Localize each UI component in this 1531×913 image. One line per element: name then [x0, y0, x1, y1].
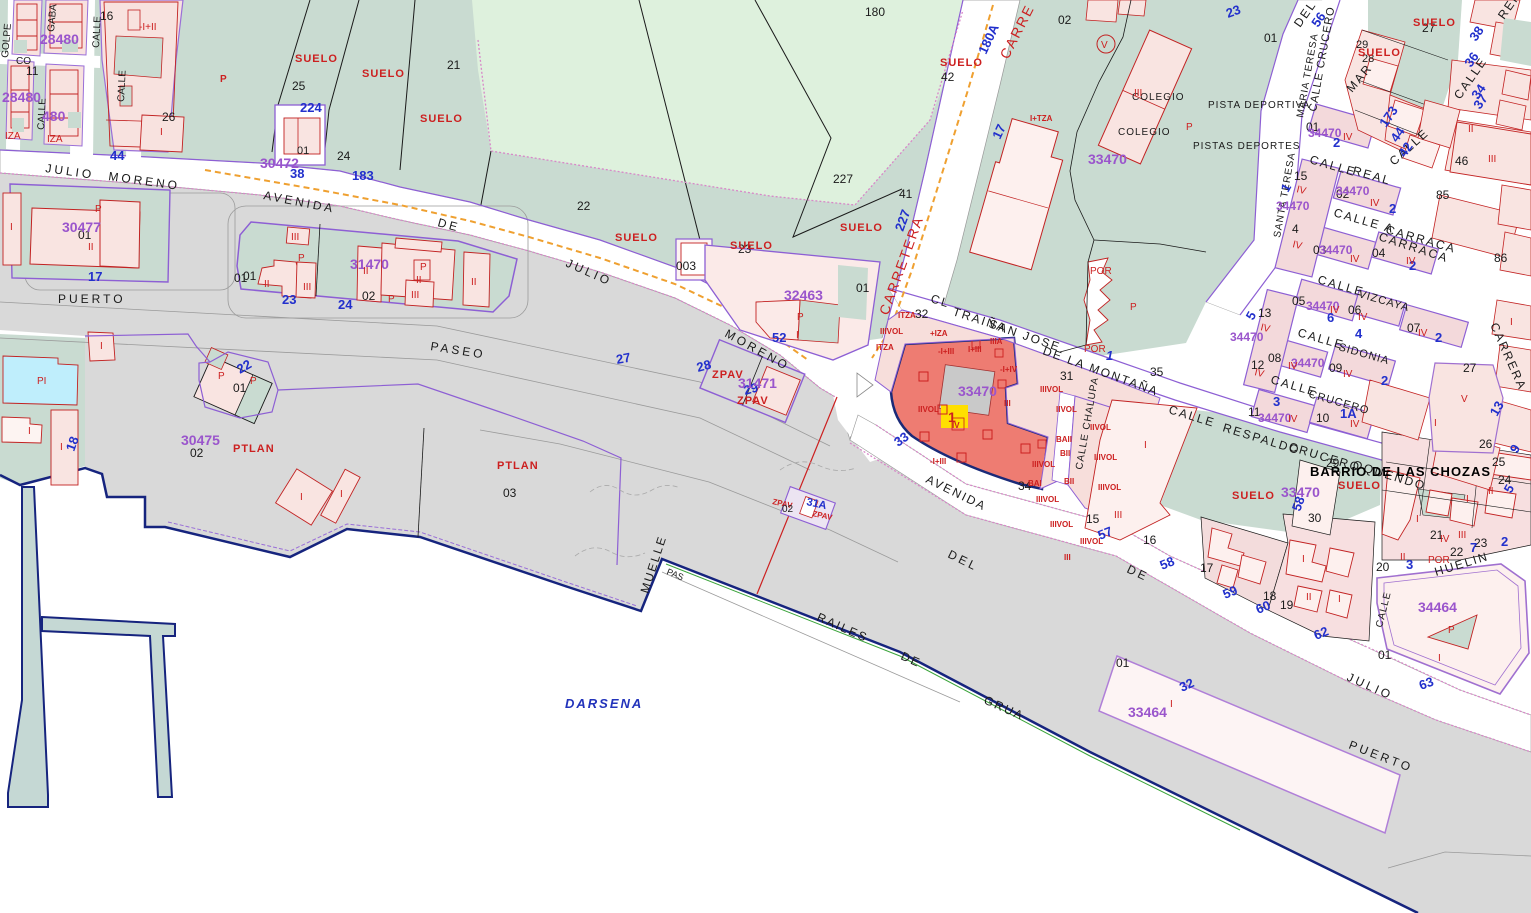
svg-text:II: II — [471, 277, 477, 288]
svg-text:IV: IV — [1288, 414, 1298, 425]
svg-text:19: 19 — [1280, 598, 1294, 612]
svg-text:V: V — [1101, 40, 1108, 51]
svg-text:24: 24 — [338, 297, 353, 312]
svg-text:52: 52 — [772, 330, 786, 345]
svg-text:29: 29 — [1326, 456, 1340, 470]
svg-text:22: 22 — [577, 199, 591, 213]
svg-text:09: 09 — [1329, 361, 1343, 375]
svg-text:30475: 30475 — [181, 432, 220, 448]
svg-text:III: III — [291, 232, 299, 243]
svg-text:32463: 32463 — [784, 287, 823, 303]
svg-text:41: 41 — [899, 187, 913, 201]
svg-text:PTLAN: PTLAN — [233, 443, 275, 455]
svg-text:POR: POR — [1084, 344, 1106, 355]
svg-text:28480: 28480 — [40, 31, 79, 47]
svg-text:P: P — [1186, 122, 1193, 133]
svg-text:20: 20 — [1376, 560, 1390, 574]
svg-text:II: II — [1488, 486, 1494, 497]
svg-text:I: I — [796, 330, 799, 341]
svg-text:IV: IV — [952, 421, 960, 430]
svg-text:15: 15 — [1086, 512, 1100, 526]
svg-text:13: 13 — [1258, 306, 1272, 320]
svg-text:02: 02 — [362, 289, 376, 303]
svg-text:IIIVOL: IIIVOL — [1036, 495, 1059, 504]
svg-text:P: P — [388, 294, 395, 305]
svg-text:SUELO: SUELO — [1232, 490, 1275, 502]
svg-text:IV: IV — [1288, 361, 1298, 372]
svg-text:IIVOL: IIVOL — [1090, 423, 1111, 432]
svg-text:-I+III: -I+III — [938, 347, 954, 356]
svg-text:PI: PI — [37, 376, 46, 387]
svg-text:IV: IV — [1350, 254, 1360, 265]
svg-text:II: II — [1306, 592, 1312, 603]
svg-text:IIIVOL: IIIVOL — [1094, 453, 1117, 462]
svg-text:II: II — [363, 266, 369, 277]
svg-text:IIIVOL: IIIVOL — [1080, 537, 1103, 546]
svg-text:I: I — [160, 127, 163, 138]
svg-text:IV: IV — [1370, 198, 1380, 209]
svg-text:III: III — [303, 282, 311, 293]
svg-text:IIIA: IIIA — [990, 337, 1003, 346]
svg-text:10: 10 — [1316, 411, 1330, 425]
svg-text:P: P — [95, 204, 102, 215]
svg-text:17: 17 — [88, 269, 102, 284]
svg-text:11: 11 — [26, 64, 39, 78]
svg-text:86: 86 — [1494, 251, 1508, 265]
svg-text:30472: 30472 — [260, 155, 299, 171]
svg-text:P: P — [298, 253, 305, 264]
svg-text:003: 003 — [676, 259, 696, 273]
svg-text:01: 01 — [1264, 31, 1278, 45]
svg-text:IIVOL: IIVOL — [918, 405, 939, 414]
svg-text:I: I — [100, 341, 103, 352]
svg-text:IIIVOL: IIIVOL — [1050, 520, 1073, 529]
svg-text:2: 2 — [1435, 330, 1442, 345]
svg-text:ZPAV: ZPAV — [737, 395, 769, 407]
svg-text:34470: 34470 — [1319, 243, 1353, 257]
svg-text:PTLAN: PTLAN — [497, 460, 539, 472]
svg-text:IIIVOL: IIIVOL — [1098, 483, 1121, 492]
svg-text:IIIVOL: IIIVOL — [1040, 385, 1063, 394]
svg-text:IIIVOL: IIIVOL — [880, 327, 903, 336]
svg-text:I: I — [1434, 418, 1437, 429]
svg-text:III: III — [1134, 88, 1142, 99]
svg-text:IZA: IZA — [47, 134, 63, 145]
svg-text:30: 30 — [1308, 511, 1322, 525]
svg-text:COLEGIO: COLEGIO — [1118, 127, 1171, 138]
svg-text:IV: IV — [1343, 132, 1353, 143]
svg-text:17: 17 — [1200, 561, 1214, 575]
svg-text:I: I — [1466, 494, 1469, 505]
svg-text:28480: 28480 — [2, 89, 41, 105]
svg-text:1: 1 — [1106, 348, 1113, 363]
svg-text:ITZA: ITZA — [898, 311, 916, 320]
svg-text:ITZA: ITZA — [876, 343, 894, 352]
svg-text:480: 480 — [42, 108, 66, 124]
svg-text:POR: POR — [1428, 555, 1450, 566]
svg-text:III: III — [1488, 154, 1496, 165]
svg-text:2: 2 — [1501, 534, 1508, 549]
svg-text:I: I — [1144, 440, 1147, 451]
svg-text:227: 227 — [833, 172, 853, 186]
svg-text:31470: 31470 — [350, 256, 389, 272]
svg-text:+IZA: +IZA — [930, 329, 948, 338]
svg-text:I: I — [1416, 514, 1419, 525]
svg-text:33470: 33470 — [958, 383, 997, 399]
svg-text:01: 01 — [1378, 648, 1392, 662]
svg-text:02: 02 — [190, 446, 204, 460]
svg-text:26: 26 — [1479, 437, 1493, 451]
svg-text:3: 3 — [1406, 557, 1413, 572]
svg-text:27: 27 — [615, 350, 632, 367]
svg-text:34470: 34470 — [1336, 184, 1370, 198]
svg-text:224: 224 — [300, 100, 322, 115]
svg-text:IV: IV — [1343, 369, 1353, 380]
svg-text:16: 16 — [100, 9, 114, 23]
svg-text:POR: POR — [1090, 266, 1112, 277]
svg-text:03: 03 — [503, 486, 517, 500]
svg-text:-I+IV: -I+IV — [1000, 365, 1018, 374]
svg-text:I+TZA: I+TZA — [1030, 114, 1053, 123]
svg-text:III: III — [411, 290, 419, 301]
svg-text:BAI: BAI — [1028, 479, 1042, 488]
svg-text:SUELO: SUELO — [362, 68, 405, 80]
svg-text:35: 35 — [1150, 365, 1164, 379]
svg-text:P: P — [1448, 625, 1455, 636]
svg-text:III: III — [1114, 510, 1122, 521]
svg-text:IV: IV — [1350, 419, 1360, 430]
svg-text:22: 22 — [1450, 545, 1464, 559]
svg-text:P: P — [218, 371, 225, 382]
svg-text:SUELO: SUELO — [840, 222, 883, 234]
svg-text:-I+II: -I+II — [139, 22, 157, 33]
svg-text:P: P — [250, 376, 257, 387]
svg-text:IV: IV — [1440, 534, 1450, 545]
svg-text:III: III — [1004, 399, 1011, 408]
svg-text:04: 04 — [1372, 246, 1386, 260]
svg-text:05: 05 — [1292, 294, 1306, 308]
svg-text:16: 16 — [1143, 533, 1157, 547]
svg-text:31471: 31471 — [738, 375, 777, 391]
svg-text:46: 46 — [1455, 154, 1469, 168]
svg-text:SUELO: SUELO — [1413, 17, 1456, 29]
svg-text:II: II — [264, 279, 270, 290]
svg-text:180: 180 — [865, 5, 885, 19]
svg-text:P: P — [220, 74, 228, 85]
svg-text:IIIVOL: IIIVOL — [1032, 460, 1055, 469]
svg-text:34470: 34470 — [1258, 411, 1292, 425]
svg-text:P: P — [1130, 302, 1137, 313]
svg-text:33464: 33464 — [1128, 704, 1167, 720]
svg-text:II: II — [1468, 124, 1474, 135]
svg-text:BII: BII — [1064, 477, 1074, 486]
svg-text:SUELO: SUELO — [1338, 480, 1381, 492]
svg-text:31: 31 — [1060, 369, 1074, 383]
svg-text:01: 01 — [1116, 656, 1130, 670]
svg-text:P: P — [797, 312, 804, 323]
svg-text:PISTAS DEPORTES: PISTAS DEPORTES — [1193, 141, 1300, 152]
svg-text:01: 01 — [233, 381, 247, 395]
svg-text:I+III: I+III — [968, 345, 982, 354]
svg-text:ZPAV: ZPAV — [712, 369, 744, 381]
svg-text:I: I — [300, 492, 303, 503]
svg-text:2: 2 — [1381, 373, 1388, 388]
svg-text:V: V — [1461, 394, 1468, 405]
svg-text:I: I — [340, 489, 343, 500]
svg-text:DARSENA: DARSENA — [565, 696, 643, 711]
svg-text:II: II — [1400, 552, 1406, 563]
svg-text:7: 7 — [1470, 540, 1477, 555]
svg-text:IV: IV — [1418, 328, 1428, 339]
svg-text:III: III — [1064, 553, 1071, 562]
svg-text:2: 2 — [1389, 201, 1396, 216]
svg-text:SUELO: SUELO — [730, 240, 773, 252]
svg-text:PUERTO: PUERTO — [58, 292, 126, 306]
svg-text:4: 4 — [1355, 326, 1363, 341]
svg-text:183: 183 — [352, 168, 374, 183]
svg-text:IIVOL: IIVOL — [1056, 405, 1077, 414]
svg-text:SUELO: SUELO — [940, 57, 983, 69]
svg-text:II: II — [88, 242, 94, 253]
svg-text:BAII: BAII — [1056, 435, 1072, 444]
svg-text:33470: 33470 — [1088, 151, 1127, 167]
svg-text:02: 02 — [1058, 13, 1072, 27]
svg-text:I: I — [10, 222, 13, 233]
svg-text:P: P — [420, 262, 427, 273]
svg-text:II: II — [416, 275, 422, 286]
svg-text:3: 3 — [1273, 394, 1280, 409]
svg-text:I: I — [1510, 317, 1513, 328]
svg-text:SUELO: SUELO — [420, 113, 463, 125]
svg-text:34470: 34470 — [1276, 199, 1310, 213]
svg-text:42: 42 — [941, 70, 955, 84]
svg-text:30477: 30477 — [62, 219, 101, 235]
svg-text:21: 21 — [447, 58, 461, 72]
svg-text:02: 02 — [782, 504, 794, 515]
svg-text:24: 24 — [337, 149, 351, 163]
svg-text:-I+III: -I+III — [930, 457, 946, 466]
svg-text:I: I — [1338, 594, 1341, 605]
svg-text:25: 25 — [1492, 455, 1506, 469]
svg-text:CALLE: CALLE — [116, 70, 129, 103]
svg-text:IZA: IZA — [5, 131, 21, 142]
svg-text:IV: IV — [1330, 305, 1340, 316]
svg-text:PISTA DEPORTIVA: PISTA DEPORTIVA — [1208, 100, 1310, 111]
svg-text:III: III — [1458, 530, 1466, 541]
svg-text:4: 4 — [1292, 222, 1299, 236]
svg-text:25: 25 — [292, 79, 306, 93]
svg-text:27: 27 — [1463, 361, 1477, 375]
svg-text:33470: 33470 — [1281, 484, 1320, 500]
svg-text:08: 08 — [1268, 351, 1282, 365]
svg-text:15: 15 — [1294, 169, 1308, 183]
svg-text:34464: 34464 — [1418, 599, 1457, 615]
svg-text:34470: 34470 — [1308, 126, 1342, 140]
svg-text:I: I — [1438, 653, 1441, 664]
svg-text:SUELO: SUELO — [615, 232, 658, 244]
svg-text:32: 32 — [915, 307, 929, 321]
svg-text:IV: IV — [1358, 312, 1368, 323]
svg-text:IV: IV — [1406, 256, 1416, 267]
svg-text:85: 85 — [1436, 188, 1450, 202]
svg-text:26: 26 — [162, 110, 176, 124]
svg-text:23: 23 — [282, 292, 296, 307]
svg-text:I: I — [28, 426, 31, 437]
svg-text:I: I — [60, 442, 63, 453]
svg-text:01: 01 — [243, 269, 257, 283]
svg-text:SUELO: SUELO — [1358, 47, 1401, 59]
svg-text:SUELO: SUELO — [295, 53, 338, 65]
svg-text:44: 44 — [110, 148, 125, 163]
svg-text:I: I — [1170, 699, 1173, 710]
svg-text:I: I — [1302, 554, 1305, 565]
svg-text:01: 01 — [856, 281, 870, 295]
svg-text:BII: BII — [1060, 449, 1070, 458]
